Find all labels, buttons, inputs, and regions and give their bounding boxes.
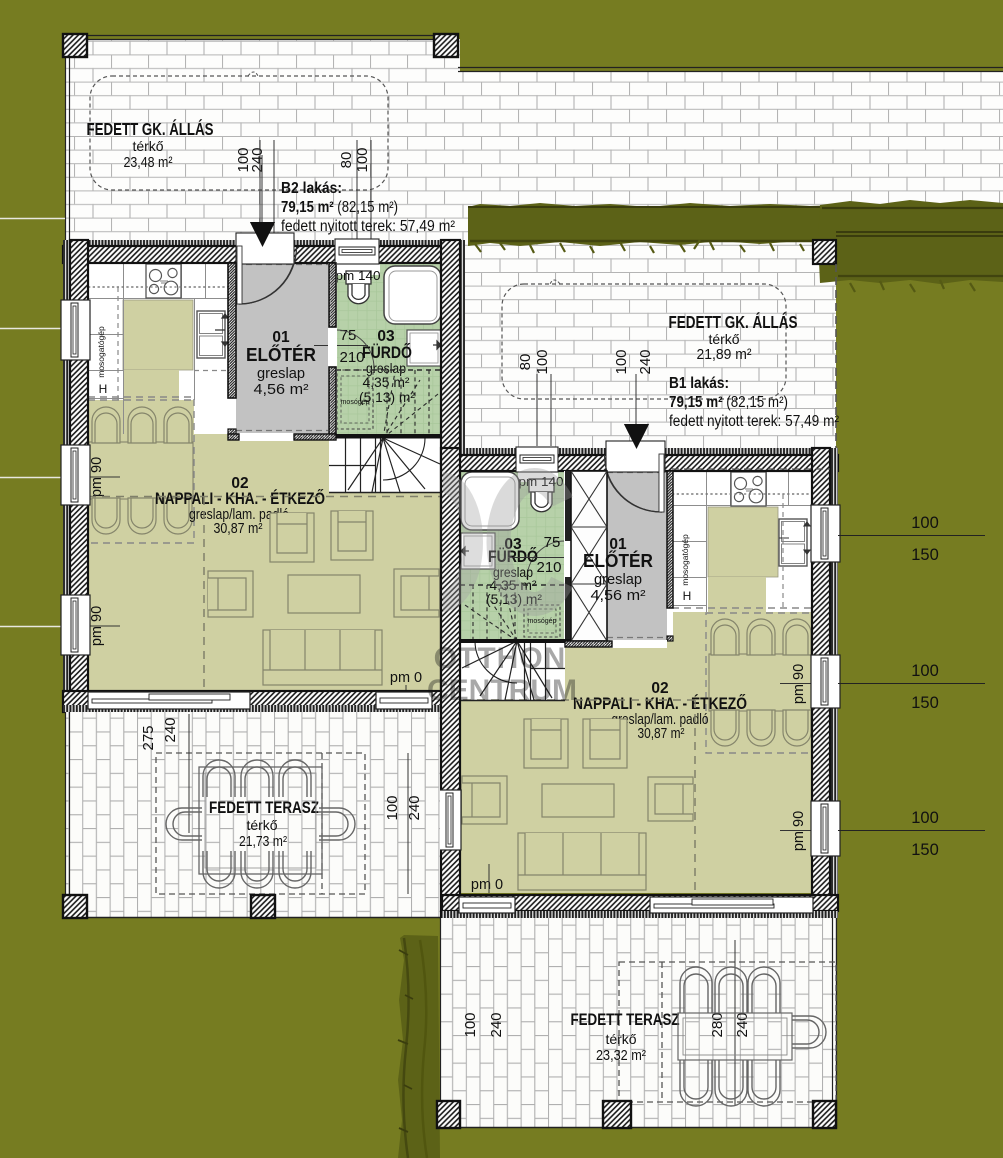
svg-text:pm 0: pm 0 [471, 877, 503, 893]
svg-text:ELŐTÉR: ELŐTÉR [583, 550, 653, 571]
svg-text:greslap: greslap [257, 366, 305, 382]
svg-text:23,48 m²: 23,48 m² [124, 154, 173, 171]
svg-text:FEDETT GK. ÁLLÁS: FEDETT GK. ÁLLÁS [87, 118, 214, 139]
svg-text:210: 210 [339, 349, 364, 366]
svg-text:4,56 m²: 4,56 m² [591, 588, 646, 604]
svg-text:NAPPALI - KHA. - ÉTKEZŐ: NAPPALI - KHA. - ÉTKEZŐ [573, 694, 747, 713]
svg-text:fedett nyitott terek: 57,49 m²: fedett nyitott terek: 57,49 m² [669, 413, 839, 430]
svg-text:FEDETT TERASZ: FEDETT TERASZ [571, 1011, 680, 1029]
svg-text:H: H [99, 382, 108, 396]
svg-text:150: 150 [911, 841, 939, 859]
svg-text:21,89 m²: 21,89 m² [697, 346, 752, 363]
svg-text:75: 75 [340, 327, 357, 344]
svg-text:150: 150 [911, 694, 939, 712]
svg-text:75: 75 [544, 534, 561, 551]
svg-text:240: 240 [637, 349, 654, 374]
svg-text:80: 80 [338, 152, 355, 169]
svg-text:4,35 m²: 4,35 m² [363, 375, 411, 390]
svg-text:FEDETT GK. ÁLLÁS: FEDETT GK. ÁLLÁS [669, 311, 798, 332]
svg-text:100: 100 [384, 795, 401, 820]
svg-text:mosogatógép: mosogatógép [96, 326, 106, 378]
svg-text:100: 100 [534, 349, 551, 374]
svg-text:210: 210 [536, 559, 561, 576]
svg-text:FÜRDŐ: FÜRDŐ [362, 343, 412, 362]
svg-text:100: 100 [911, 514, 939, 532]
svg-text:80: 80 [517, 354, 534, 371]
svg-text:térkő: térkő [605, 1031, 636, 1047]
svg-text:greslap: greslap [366, 361, 406, 376]
svg-text:100: 100 [462, 1012, 479, 1037]
svg-text:mosógép: mosógép [341, 399, 370, 406]
svg-text:30,87 m²: 30,87 m² [638, 726, 685, 742]
svg-text:30,87 m²: 30,87 m² [214, 521, 263, 537]
svg-text:240: 240 [249, 147, 266, 172]
svg-text:100: 100 [911, 662, 939, 680]
svg-text:mosógép: mosógép [528, 618, 557, 625]
svg-text:OTTHON: OTTHON [434, 642, 567, 675]
svg-text:21,73 m²: 21,73 m² [239, 834, 287, 850]
svg-text:mosogatógép: mosogatógép [680, 534, 690, 586]
svg-text:térkő: térkő [708, 331, 739, 347]
svg-text:240: 240 [488, 1012, 505, 1037]
svg-text:240: 240 [406, 795, 423, 820]
svg-text:CENTRUM: CENTRUM [427, 674, 577, 707]
svg-text:térkő: térkő [132, 138, 163, 154]
svg-text:fedett nyitott terek: 57,49 m²: fedett nyitott terek: 57,49 m² [281, 218, 455, 235]
svg-text:23,32 m²: 23,32 m² [596, 1048, 646, 1064]
svg-text:275: 275 [140, 725, 157, 750]
svg-text:B1 lakás:: B1 lakás: [669, 375, 729, 392]
svg-text:240: 240 [162, 717, 179, 742]
svg-text:03: 03 [377, 328, 395, 345]
svg-text:H: H [683, 589, 692, 603]
svg-text:pm 0: pm 0 [390, 670, 422, 686]
svg-text:01: 01 [272, 329, 290, 346]
svg-text:4,56 m²: 4,56 m² [254, 382, 309, 398]
svg-text:greslap: greslap [594, 572, 642, 588]
svg-text:NAPPALI - KHA. - ÉTKEZŐ: NAPPALI - KHA. - ÉTKEZŐ [155, 489, 325, 508]
svg-text:FEDETT TERASZ: FEDETT TERASZ [209, 799, 319, 817]
svg-text:79,15 m² (82,15 m²): 79,15 m² (82,15 m²) [281, 199, 398, 216]
svg-text:79,15 m² (82,15 m²): 79,15 m² (82,15 m²) [669, 394, 788, 411]
svg-text:pm 140: pm 140 [336, 268, 381, 283]
svg-text:280: 280 [709, 1012, 726, 1037]
svg-text:100: 100 [911, 809, 939, 827]
svg-text:ELŐTÉR: ELŐTÉR [246, 344, 316, 365]
svg-text:100: 100 [613, 349, 630, 374]
svg-text:térkő: térkő [246, 817, 277, 833]
svg-text:240: 240 [734, 1012, 751, 1037]
svg-text:B2 lakás:: B2 lakás: [281, 180, 342, 197]
svg-text:150: 150 [911, 546, 939, 564]
